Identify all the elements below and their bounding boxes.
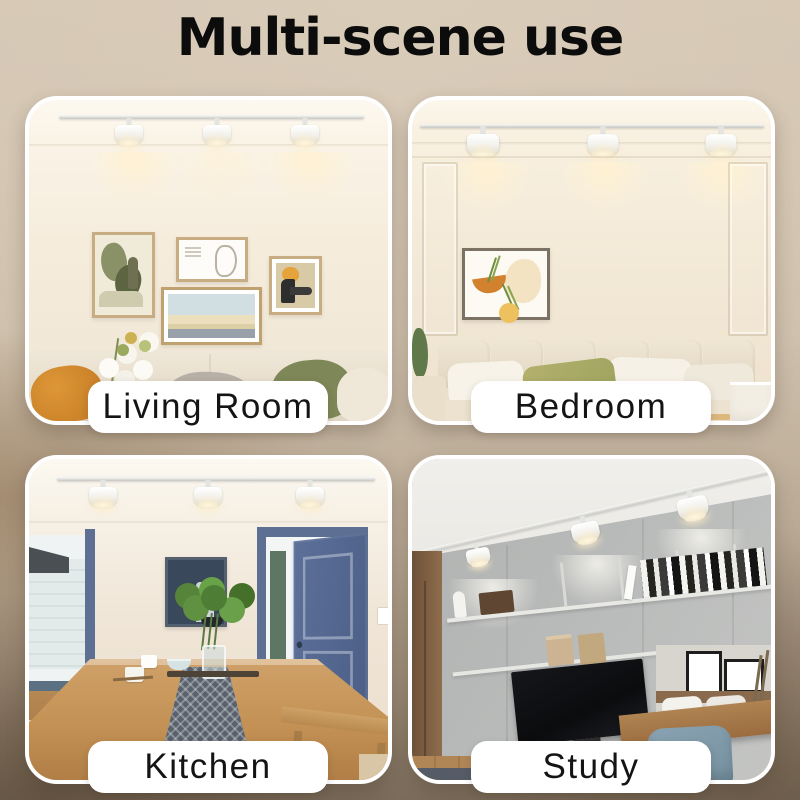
label-kitchen: Kitchen xyxy=(88,741,328,793)
label-bedroom: Bedroom xyxy=(471,381,711,433)
caption-lines xyxy=(185,247,201,249)
wardrobe-seam xyxy=(424,581,426,780)
foliage xyxy=(201,585,227,611)
figure-line-art xyxy=(215,245,237,277)
art-blob xyxy=(505,259,541,303)
study-scene xyxy=(412,459,771,780)
spotlight xyxy=(588,127,619,158)
nightstand xyxy=(730,382,772,425)
abstract-arm xyxy=(290,287,312,295)
wall-molding xyxy=(728,162,768,336)
gallery-frame-beach xyxy=(161,287,262,345)
storage-boxes xyxy=(545,634,574,667)
spotlight xyxy=(115,118,143,146)
plant-bouquet xyxy=(179,577,249,649)
wardrobe xyxy=(412,551,442,780)
label-text: Kitchen xyxy=(144,747,271,787)
spotlight xyxy=(89,480,117,508)
white-flowers xyxy=(99,358,119,378)
range-hood xyxy=(29,547,69,573)
spotlight xyxy=(464,541,492,569)
vase-shape xyxy=(128,257,138,289)
spotlight-lens xyxy=(93,501,113,509)
floor-patch xyxy=(359,754,389,780)
door-knob xyxy=(297,642,302,649)
gallery-frame-figure xyxy=(269,256,322,315)
gallery-frame-botanical xyxy=(92,232,155,318)
spotlight xyxy=(706,127,737,158)
art-circle xyxy=(499,303,519,323)
spotlight xyxy=(467,126,499,158)
bedroom-scene xyxy=(412,100,771,421)
panel-study xyxy=(408,455,775,784)
shelf-dividers xyxy=(560,562,568,606)
page-title: Multi-scene use xyxy=(0,8,800,68)
bedroom-artwork xyxy=(462,248,550,320)
stems xyxy=(207,613,213,649)
panel-kitchen xyxy=(25,455,392,784)
spotlight-lens xyxy=(207,139,227,147)
panel-bedroom xyxy=(408,96,775,425)
picture-frame xyxy=(686,651,722,695)
leaning-book xyxy=(624,565,637,600)
spotlight xyxy=(674,487,711,524)
spotlight-lens xyxy=(300,501,320,509)
spotlight-lens xyxy=(119,139,139,147)
spotlight xyxy=(291,118,319,146)
pillow-cream xyxy=(337,368,392,422)
wall-molding xyxy=(422,162,458,336)
table-shape xyxy=(99,291,143,307)
poster: Multi-scene use xyxy=(0,0,800,800)
door-panel xyxy=(303,552,353,639)
molding-line xyxy=(412,156,771,158)
light-glow xyxy=(245,152,375,262)
kitchen-scene xyxy=(29,459,388,780)
spotlight xyxy=(296,480,324,508)
beach-art xyxy=(168,294,255,338)
tile-wall xyxy=(29,559,87,669)
vase xyxy=(452,591,467,618)
spotlight xyxy=(568,513,602,547)
label-text: Study xyxy=(543,747,640,787)
light-glow xyxy=(540,162,670,272)
shelf-box-dark xyxy=(479,590,515,615)
green-curtain xyxy=(270,551,286,669)
spotlight xyxy=(203,118,231,146)
bench xyxy=(412,376,446,422)
wood-tray xyxy=(167,671,259,677)
leaf-accents xyxy=(125,332,137,344)
label-living-room: Living Room xyxy=(88,381,328,433)
living-room-scene xyxy=(29,100,388,421)
cornice-line xyxy=(29,521,388,524)
spotlight xyxy=(194,480,222,508)
label-text: Living Room xyxy=(102,387,313,427)
light-switch xyxy=(377,607,392,625)
gallery-frame-sketch xyxy=(176,237,248,282)
label-text: Bedroom xyxy=(515,387,668,427)
spotlight-lens xyxy=(295,139,315,147)
mug xyxy=(141,655,157,668)
panel-living-room xyxy=(25,96,392,425)
plant xyxy=(412,328,428,378)
label-study: Study xyxy=(471,741,711,793)
spotlight-lens xyxy=(198,501,218,509)
